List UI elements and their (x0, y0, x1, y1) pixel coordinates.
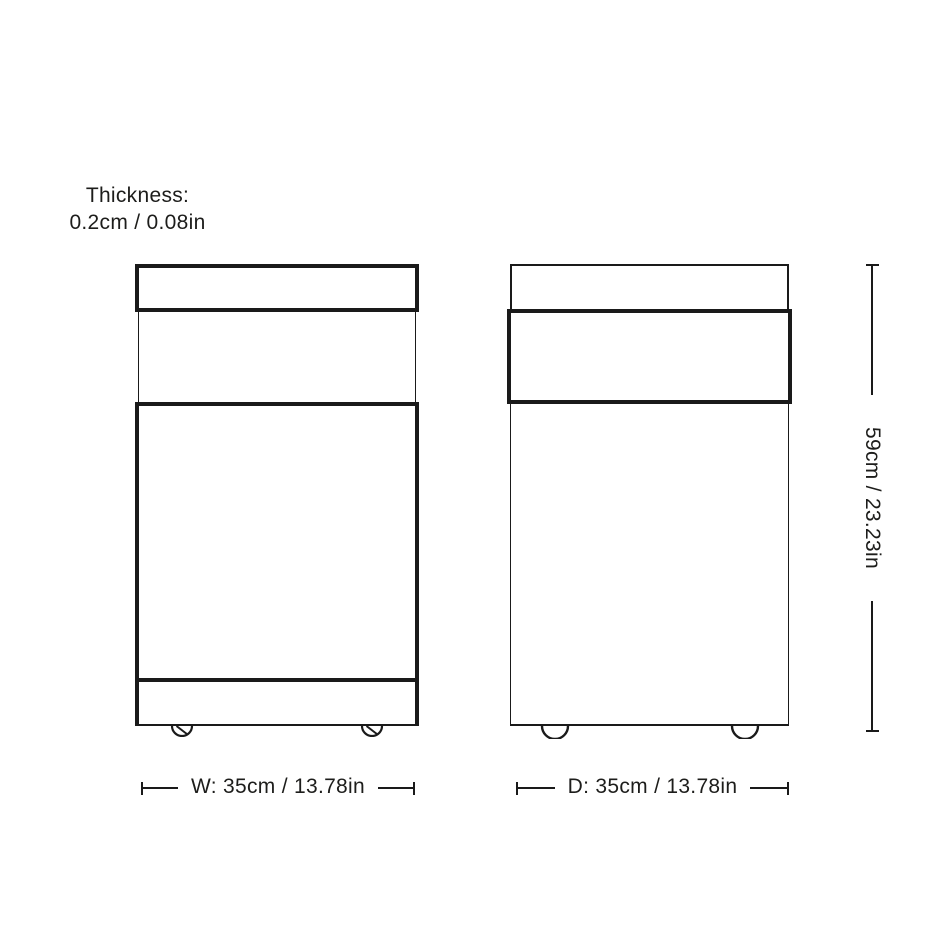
thickness-value: 0.2cm / 0.08in (60, 209, 215, 236)
width-dim-label: W: 35cm / 13.78in (178, 775, 378, 799)
width-dimension: W: 35cm / 13.78in (141, 781, 415, 795)
side-body-panel (510, 404, 789, 726)
depth-dim-label: D: 35cm / 13.78in (555, 775, 751, 799)
width-dim-right-tick (413, 782, 415, 795)
front-body-panel (135, 402, 419, 682)
depth-dim-left-line (518, 787, 555, 789)
thickness-note: Thickness: 0.2cm / 0.08in (60, 182, 215, 236)
depth-dimension: D: 35cm / 13.78in (516, 781, 789, 795)
side-left-wheel-icon (540, 725, 570, 739)
thickness-title: Thickness: (60, 182, 215, 209)
depth-dim-right-tick (787, 782, 789, 795)
front-plinth (135, 682, 419, 726)
side-right-wheel-icon (730, 725, 760, 739)
width-dim-left-line (143, 787, 178, 789)
height-dimension: 59cm / 23.23in (865, 264, 879, 732)
depth-dim-right-line (750, 787, 787, 789)
height-dim-top-line (871, 266, 873, 395)
side-top-panel (510, 264, 789, 311)
height-dim-bottom-line (871, 601, 873, 730)
front-right-caster-icon (360, 725, 384, 737)
height-dim-bottom-tick (866, 730, 879, 732)
front-left-caster-icon (170, 725, 194, 737)
width-dim-right-line (378, 787, 413, 789)
side-upper-band (507, 309, 792, 404)
front-top-panel (135, 264, 419, 312)
diagram-canvas: Thickness: 0.2cm / 0.08in W: 35cm / (0, 0, 930, 930)
front-upper-recess (138, 312, 416, 402)
height-dim-label: 59cm / 23.23in (860, 395, 884, 601)
